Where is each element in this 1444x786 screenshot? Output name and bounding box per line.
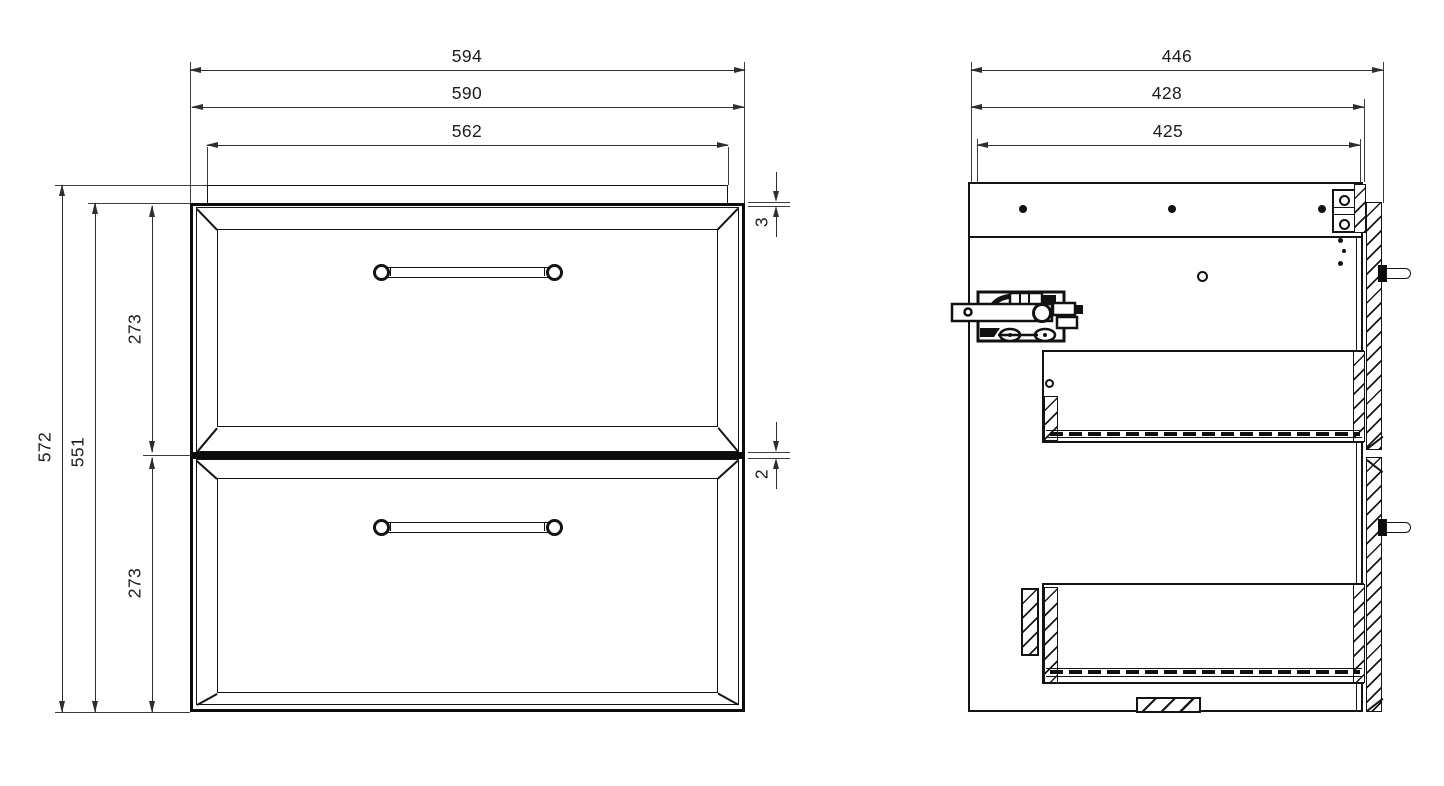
extension-line — [728, 147, 729, 185]
dim-label-overall-depth: 446 — [1162, 46, 1192, 67]
handle-side-top — [1386, 268, 1411, 279]
screw-dot — [1338, 238, 1343, 243]
drawer-bottom-line — [1046, 676, 1362, 677]
extension-line — [1364, 99, 1365, 182]
bracket-screw — [1339, 219, 1350, 230]
extension-line — [88, 203, 190, 204]
dim-label-top-reveal: 3 — [752, 217, 773, 227]
screw-dot — [1342, 249, 1346, 253]
handle-end-cap — [373, 264, 390, 281]
dim-line-overall-height — [62, 185, 63, 712]
dim-label-body-depth: 428 — [1152, 83, 1182, 104]
drawer-bottom-panel — [1050, 432, 1360, 437]
dim-arrow — [773, 206, 779, 217]
dim-line-top-drawer-height — [152, 206, 153, 452]
top-drawer-inner-panel — [217, 229, 718, 427]
dim-label-top-panel-width: 562 — [452, 121, 482, 142]
dim-label-overall-height: 572 — [35, 432, 56, 462]
extension-line — [748, 202, 790, 203]
handle-joint-line — [390, 268, 391, 276]
dim-arrow — [773, 441, 779, 452]
dim-line-inner-depth — [977, 145, 1360, 146]
screw-dot — [1338, 261, 1343, 266]
extension-line — [748, 458, 790, 459]
technical-drawing-canvas: 594 590 562 572 551 273 273 3 2 — [0, 0, 1444, 786]
screw-dot — [1168, 205, 1176, 213]
extension-line — [143, 455, 192, 456]
extension-line — [744, 62, 745, 203]
dim-line-top-reveal — [776, 217, 777, 237]
extension-line — [55, 712, 190, 713]
handle-joint-line — [390, 523, 391, 531]
dim-line-body-depth — [971, 107, 1364, 108]
handle-end-cap — [546, 264, 563, 281]
bracket-line — [1334, 207, 1354, 208]
drawer-bottom-line — [1046, 437, 1362, 438]
drawer-front-post-section — [1353, 351, 1365, 442]
extension-line — [190, 62, 191, 203]
dim-label-drawer-gap: 2 — [752, 469, 773, 479]
dim-line-bottom-drawer-height — [152, 458, 153, 712]
extension-line — [971, 62, 972, 182]
dim-line-top-panel-width — [207, 145, 728, 146]
extension-line — [1383, 62, 1384, 203]
dim-line-body-height — [95, 203, 96, 712]
handle-end-cap — [546, 519, 563, 536]
dim-label-body-width: 590 — [452, 83, 482, 104]
extension-line — [748, 452, 790, 453]
dim-line-drawer-gap — [776, 469, 777, 489]
dim-label-overall-width: 594 — [452, 46, 482, 67]
dim-line-overall-depth — [971, 70, 1383, 71]
drawer-front-section-upper — [1366, 202, 1382, 450]
dim-label-bottom-drawer-height: 273 — [125, 568, 146, 598]
drawer-handle-top — [380, 267, 555, 278]
dim-label-top-drawer-height: 273 — [125, 314, 146, 344]
drawer-bottom-panel — [1050, 670, 1360, 675]
countertop-strip — [207, 185, 728, 204]
bracket-line — [1334, 214, 1354, 215]
dim-line-top-reveal — [776, 172, 777, 192]
extension-line — [55, 185, 207, 186]
handle-end-cap — [373, 519, 390, 536]
drawer-slide-mechanism — [950, 286, 1085, 346]
dim-line-body-width — [192, 107, 744, 108]
dim-arrow — [773, 458, 779, 469]
dim-label-body-height: 551 — [68, 437, 89, 467]
extension-line — [748, 206, 790, 207]
dim-arrow — [773, 191, 779, 202]
dim-label-inner-depth: 425 — [1153, 121, 1183, 142]
extension-line — [207, 147, 208, 185]
corner-section-hatch — [1354, 184, 1366, 233]
dim-line-drawer-gap — [776, 422, 777, 442]
dim-line-overall-width — [190, 70, 745, 71]
drawer-front-section-lower — [1366, 457, 1382, 712]
top-rail-line — [968, 236, 1363, 238]
bracket-screw — [1339, 195, 1350, 206]
rail-section-block — [1021, 588, 1039, 656]
panel-screw-hole — [1197, 271, 1208, 282]
drawer-handle-bottom — [380, 522, 555, 533]
drawer-divider — [193, 452, 742, 459]
screw-dot — [1019, 205, 1027, 213]
plinth-section — [1136, 697, 1201, 713]
screw-dot — [1318, 205, 1326, 213]
handle-side-bottom — [1386, 522, 1411, 533]
drawer-screw-hole — [1045, 379, 1054, 388]
bottom-drawer-inner-panel — [217, 478, 718, 693]
